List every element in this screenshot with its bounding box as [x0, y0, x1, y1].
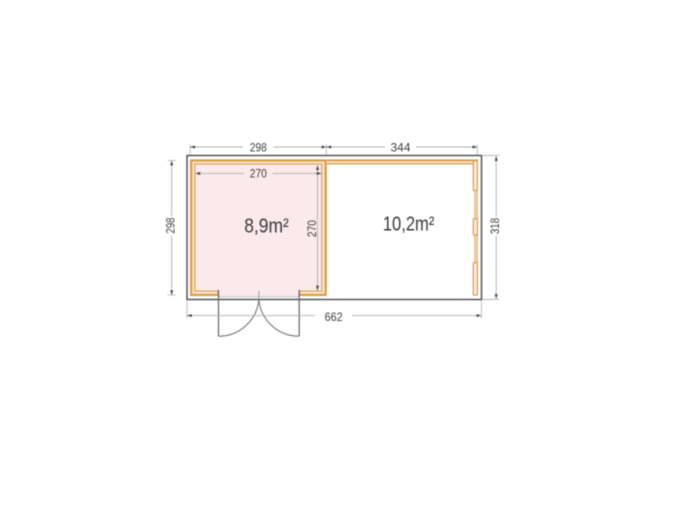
svg-text:270: 270 — [305, 220, 319, 237]
svg-text:8,9m²: 8,9m² — [244, 215, 289, 237]
svg-text:298: 298 — [250, 140, 267, 154]
svg-text:10,2m²: 10,2m² — [383, 214, 435, 236]
svg-text:344: 344 — [391, 140, 411, 154]
svg-text:662: 662 — [325, 310, 343, 324]
svg-text:318: 318 — [488, 218, 502, 234]
svg-text:298: 298 — [164, 217, 178, 233]
svg-text:270: 270 — [250, 166, 267, 180]
